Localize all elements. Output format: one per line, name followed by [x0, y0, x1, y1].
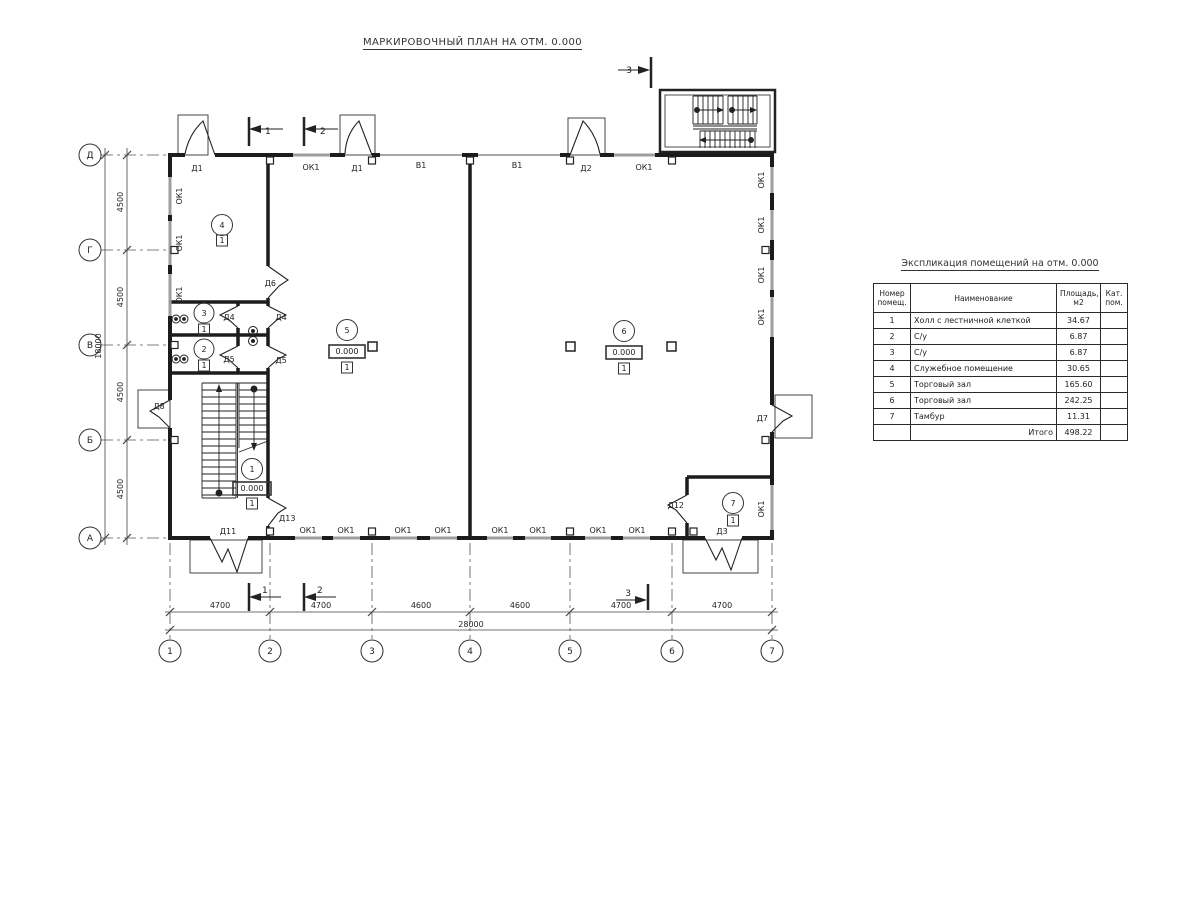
cell-name: Служебное помещение — [911, 361, 1057, 377]
dim-label: 4600 — [510, 601, 530, 610]
cell-empty — [874, 425, 911, 441]
table-row: 1 Холл с лестничной клеткой 34.67 — [874, 313, 1128, 329]
opening-label: Д8 — [153, 402, 164, 411]
exterior-stair — [660, 90, 775, 152]
cell-num: 5 — [874, 377, 911, 393]
opening-label: ОК1 — [757, 500, 766, 517]
cell-num: 3 — [874, 345, 911, 361]
cell-area: 6.87 — [1057, 345, 1101, 361]
door-d11 — [210, 538, 248, 572]
explication-title: Экспликация помещений на отм. 0.000 — [873, 258, 1127, 269]
opening-label: ОК1 — [757, 171, 766, 188]
dim-label: 4500 — [116, 287, 125, 307]
table-row: 4 Служебное помещение 30.65 — [874, 361, 1128, 377]
section-label: 1 — [265, 127, 271, 137]
door-d2 — [570, 121, 600, 155]
cell-cat — [1101, 409, 1128, 425]
cell-area: 30.65 — [1057, 361, 1101, 377]
cell-cat — [1101, 393, 1128, 409]
room-number: 2 — [201, 345, 206, 354]
dim-label: 4500 — [116, 479, 125, 499]
table-row: 6 Торговый зал 242.25 — [874, 393, 1128, 409]
opening-label: Д5 — [223, 355, 234, 364]
header-area: Площадь, м2 — [1057, 284, 1101, 313]
opening-label: Д1 — [191, 164, 202, 173]
axis-row-label: Д — [86, 151, 93, 161]
cell-num: 1 — [874, 313, 911, 329]
table-row: 2 С/у 6.87 — [874, 329, 1128, 345]
cell-cat — [1101, 329, 1128, 345]
elevation-mark: 0.000 — [336, 347, 359, 356]
axis-row-label: Г — [87, 246, 93, 256]
opening-label: Д12 — [668, 501, 684, 510]
opening-label: ОК1 — [175, 234, 184, 251]
axis-col-label: 2 — [267, 647, 273, 657]
total-value: 498.22 — [1057, 425, 1101, 441]
opening-label: Д13 — [279, 514, 295, 523]
floor-type-marker: 1 — [201, 361, 206, 370]
dim-label: 4700 — [712, 601, 732, 610]
cell-cat — [1101, 345, 1128, 361]
axis-row-label: А — [87, 534, 94, 544]
opening-label: ОК1 — [175, 286, 184, 303]
axis-row-label: Б — [87, 436, 93, 446]
cell-cat — [1101, 313, 1128, 329]
room-number: 1 — [249, 465, 254, 474]
cell-name: С/у — [911, 329, 1057, 345]
dimension-lines — [101, 148, 778, 634]
floor-plan-drawing: Д Г В Б А 1 2 3 4 5 6 7 4500 4500 4500 4… — [0, 0, 1200, 900]
cell-name: С/у — [911, 345, 1057, 361]
elevation-mark: 0.000 — [241, 484, 264, 493]
cell-num: 2 — [874, 329, 911, 345]
total-label: Итого — [911, 425, 1057, 441]
section-label: 2 — [320, 127, 326, 137]
axis-col-label: 3 — [369, 647, 375, 657]
opening-label: ОК1 — [175, 187, 184, 204]
room-number: 4 — [219, 221, 224, 230]
axis-col-label: 1 — [167, 647, 173, 657]
cell-name: Торговый зал — [911, 377, 1057, 393]
opening-label: Д2 — [580, 164, 591, 173]
axis-row-label: В — [87, 341, 93, 351]
opening-label: ОК1 — [757, 216, 766, 233]
dim-label: 4700 — [611, 601, 631, 610]
floor-type-marker: 1 — [730, 516, 735, 525]
cell-area: 6.87 — [1057, 329, 1101, 345]
door-d1a — [185, 121, 215, 155]
opening-label: ОК1 — [529, 526, 546, 535]
axis-col-label: 7 — [769, 647, 775, 657]
axis-col-label: 5 — [567, 647, 573, 657]
section-label: 3 — [626, 66, 632, 76]
vent-symbols — [172, 315, 258, 363]
explication-table: Номер помещ. Наименование Площадь, м2 Ка… — [873, 283, 1128, 441]
cell-area: 165.60 — [1057, 377, 1101, 393]
header-category: Кат. пом. — [1101, 284, 1128, 313]
floor-type-marker: 1 — [621, 364, 626, 373]
opening-label: Д6 — [265, 279, 276, 288]
table-header-row: Номер помещ. Наименование Площадь, м2 Ка… — [874, 284, 1128, 313]
opening-label: ОК1 — [589, 526, 606, 535]
cell-num: 7 — [874, 409, 911, 425]
cell-name: Тамбур — [911, 409, 1057, 425]
dim-total-label: 18000 — [94, 333, 103, 358]
cell-num: 6 — [874, 393, 911, 409]
cell-cat — [1101, 361, 1128, 377]
opening-label: ОК1 — [434, 526, 451, 535]
table-row: 5 Торговый зал 165.60 — [874, 377, 1128, 393]
elevation-mark: 0.000 — [613, 348, 636, 357]
drawing-canvas: МАРКИРОВОЧНЫЙ ПЛАН НА ОТМ. 0.000 — [0, 0, 1200, 900]
opening-label: ОК1 — [337, 526, 354, 535]
section-label: 2 — [317, 586, 323, 596]
opening-label: Д11 — [220, 527, 236, 536]
header-name: Наименование — [911, 284, 1057, 313]
axis-col-label: 6 — [669, 647, 675, 657]
floor-type-marker: 1 — [249, 499, 254, 508]
dim-label: 4700 — [311, 601, 331, 610]
opening-label: ОК1 — [302, 163, 319, 172]
floor-type-marker: 1 — [219, 236, 224, 245]
opening-label: Д3 — [716, 527, 727, 536]
cell-cat — [1101, 377, 1128, 393]
cell-name: Торговый зал — [911, 393, 1057, 409]
opening-label: Д1 — [351, 164, 362, 173]
table-total-row: Итого 498.22 — [874, 425, 1128, 441]
header-room-number: Номер помещ. — [874, 284, 911, 313]
axis-col-label: 4 — [467, 647, 473, 657]
opening-label: Д4 — [275, 313, 286, 322]
room-number: 5 — [344, 326, 349, 335]
opening-label: ОК1 — [757, 308, 766, 325]
opening-label: В1 — [512, 161, 523, 170]
dim-label: 4600 — [411, 601, 431, 610]
opening-label: Д5 — [275, 356, 286, 365]
interior-walls — [170, 155, 772, 538]
opening-label: В1 — [416, 161, 427, 170]
explication-title-text: Экспликация помещений на отм. 0.000 — [901, 258, 1098, 271]
opening-label: ОК1 — [757, 266, 766, 283]
opening-label: ОК1 — [491, 526, 508, 535]
room-number: 7 — [730, 499, 735, 508]
axis-bubbles — [79, 144, 783, 662]
floor-type-marker: 1 — [344, 363, 349, 372]
room-number: 6 — [621, 327, 626, 336]
opening-label: ОК1 — [299, 526, 316, 535]
table-row: 3 С/у 6.87 — [874, 345, 1128, 361]
opening-label: ОК1 — [394, 526, 411, 535]
opening-label: Д4 — [223, 313, 234, 322]
section-label: 1 — [262, 586, 268, 596]
cell-name: Холл с лестничной клеткой — [911, 313, 1057, 329]
cell-num: 4 — [874, 361, 911, 377]
dim-label: 4700 — [210, 601, 230, 610]
dim-label: 4500 — [116, 192, 125, 212]
dim-total-label: 28000 — [458, 620, 483, 629]
floor-type-marker: 1 — [201, 325, 206, 334]
room-number: 3 — [201, 309, 206, 318]
cell-area: 242.25 — [1057, 393, 1101, 409]
opening-label: Д7 — [757, 414, 768, 423]
stairwell — [202, 383, 268, 498]
cell-empty — [1101, 425, 1128, 441]
cell-area: 34.67 — [1057, 313, 1101, 329]
table-row: 7 Тамбур 11.31 — [874, 409, 1128, 425]
door-d1b — [345, 121, 372, 155]
dim-label: 4500 — [116, 382, 125, 402]
cell-area: 11.31 — [1057, 409, 1101, 425]
section-label: 3 — [625, 589, 631, 599]
door-d3 — [705, 538, 742, 570]
opening-label: ОК1 — [628, 526, 645, 535]
opening-label: ОК1 — [635, 163, 652, 172]
